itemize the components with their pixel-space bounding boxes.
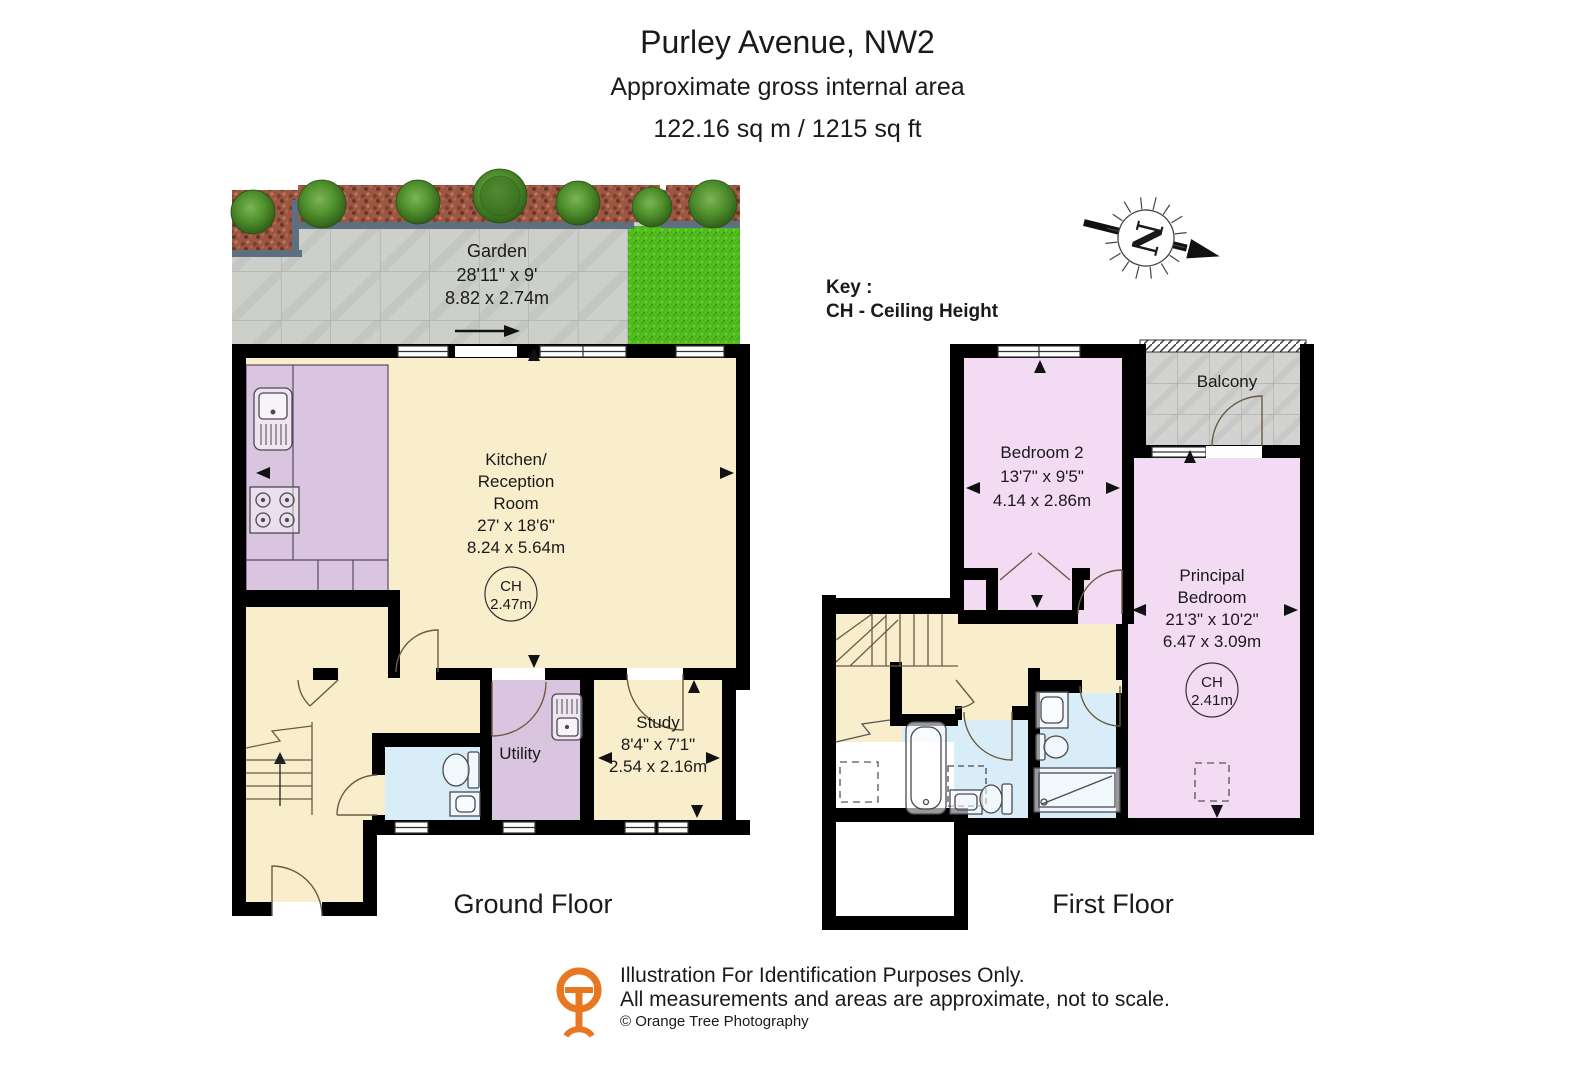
ensuite-basin-icon <box>1036 692 1068 728</box>
toilet-icon <box>443 752 479 788</box>
garden-dim-imperial: 28'11" x 9' <box>457 265 538 285</box>
kitchen-dim-imperial: 27' x 18'6" <box>477 516 555 535</box>
disclaimer-line-1: Illustration For Identification Purposes… <box>620 964 1170 988</box>
utility-sink-icon <box>552 694 582 740</box>
compass-arrowhead <box>1186 239 1222 266</box>
bathroom-toilet-icon <box>980 784 1012 814</box>
ensuite-toilet-icon <box>1036 734 1068 760</box>
footer: Illustration For Identification Purposes… <box>552 964 1170 1042</box>
balcony-rail-hatch <box>1140 340 1306 352</box>
kitchen-ch-value: 2.47m <box>490 596 532 613</box>
bedroom2-dim-imperial: 13'7" x 9'5" <box>1000 467 1084 486</box>
ground-floor: Kitchen/ Reception Room 27' x 18'6" 8.24… <box>232 344 750 919</box>
principal-label-2: Bedroom <box>1178 588 1247 607</box>
principal-ch-label: CH <box>1201 674 1223 691</box>
bathtub-icon <box>906 722 946 814</box>
disclaimer-line-2: All measurements and areas are approxima… <box>620 988 1170 1012</box>
first-floor-title: First Floor <box>1052 889 1174 919</box>
kitchen-label-3: Room <box>493 494 538 513</box>
principal-ch-value: 2.41m <box>1191 692 1233 709</box>
garden: Garden 28'11" x 9' 8.82 x 2.74m <box>231 169 740 345</box>
study-label: Study <box>636 713 680 732</box>
copyright: © Orange Tree Photography <box>620 1012 1170 1032</box>
bedroom2 <box>964 358 1122 570</box>
north-compass: N <box>1074 182 1230 297</box>
orange-tree-logo <box>552 964 606 1042</box>
study-dim-imperial: 8'4" x 7'1" <box>621 735 695 754</box>
ground-floor-title: Ground Floor <box>453 889 612 919</box>
balcony-label: Balcony <box>1197 372 1258 391</box>
key-block: Key : CH - Ceiling Height <box>826 277 999 322</box>
principal-dim-imperial: 21'3" x 10'2" <box>1165 610 1258 629</box>
hob-icon <box>250 487 299 533</box>
garden-label: Garden <box>467 241 527 261</box>
bedroom2-dim-metric: 4.14 x 2.86m <box>993 491 1091 510</box>
first-floor: Bedroom 2 13'7" x 9'5" 4.14 x 2.86m Balc… <box>822 340 1314 930</box>
kitchen-label-1: Kitchen/ <box>485 450 547 469</box>
kitchen-dim-metric: 8.24 x 5.64m <box>467 538 565 557</box>
garden-dim-metric: 8.82 x 2.74m <box>445 288 549 308</box>
floorplan-canvas: Garden 28'11" x 9' 8.82 x 2.74m <box>0 0 1575 1080</box>
kitchen-sink-icon <box>254 388 292 450</box>
utility-label: Utility <box>499 744 541 763</box>
garden-grass <box>628 226 740 345</box>
key-label: Key : <box>826 277 872 298</box>
bedroom2-label: Bedroom 2 <box>1000 443 1083 462</box>
basin-icon <box>450 792 480 816</box>
kitchen-label-2: Reception <box>478 472 555 491</box>
shower-icon <box>1034 768 1120 812</box>
key-entry: CH - Ceiling Height <box>826 301 999 322</box>
principal-label-1: Principal <box>1179 566 1244 585</box>
study-dim-metric: 2.54 x 2.16m <box>609 757 707 776</box>
kitchen-ch-label: CH <box>500 578 522 595</box>
balcony <box>1146 352 1300 445</box>
garden-edging <box>232 250 302 257</box>
principal-dim-metric: 6.47 x 3.09m <box>1163 632 1261 651</box>
